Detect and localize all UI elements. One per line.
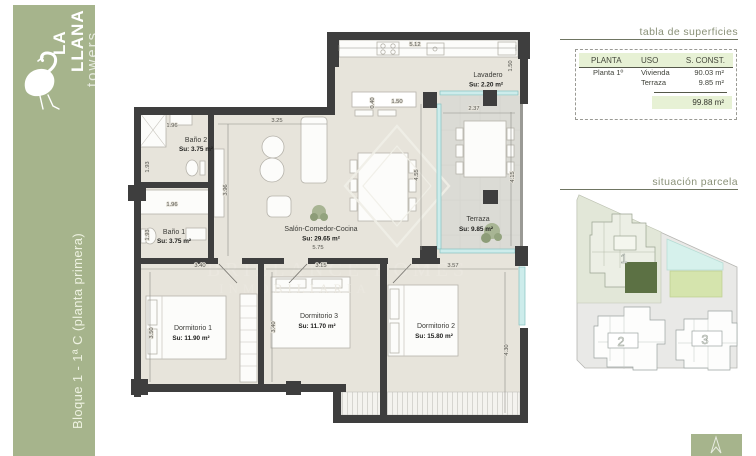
- dim-dorm2-w: 3.57: [447, 263, 458, 269]
- brand-line1: LA: [50, 30, 69, 55]
- dim-terraza-left: 4.55: [414, 169, 420, 180]
- dim-lavadero-h: 1.50: [508, 60, 514, 71]
- dim-dorm2-h: 4.30: [504, 344, 510, 355]
- dim-terraza-right: 4.15: [510, 171, 516, 182]
- surfaces-table-header: PLANTA USO S. CONST.: [579, 53, 733, 68]
- cell-planta: [579, 78, 641, 88]
- dim-salon-bottom: 5.75: [312, 245, 323, 251]
- total-separator: [654, 92, 727, 93]
- room-salon-area: Su: 29.65 m²: [302, 236, 340, 243]
- dim-salon-left: 3.25: [271, 118, 282, 124]
- garden: [670, 271, 722, 297]
- pool: [667, 239, 723, 270]
- room-salon-name: Salón-Comedor-Cocina: [284, 226, 357, 233]
- brand-sidebar: LA LLANA towers Bloque 1 - 1ª C (planta …: [13, 5, 95, 456]
- floor-plan: BRILLANCE HOMES INMOBILIARIA: [118, 20, 568, 440]
- room-dorm3-area: Su: 11.70 m²: [298, 323, 335, 330]
- north-compass: [691, 434, 742, 456]
- room-bano1-area: Su: 3.75 m²: [157, 238, 191, 245]
- watermark-line2: INMOBILIARIA: [219, 281, 371, 296]
- brand-line3: towers: [84, 31, 95, 87]
- room-dorm2-name: Dormitorio 2: [417, 323, 455, 330]
- block-unit-label: Bloque 1 - 1ª C (planta primera): [70, 211, 85, 429]
- table-row: Terraza 9.85 m²: [579, 78, 733, 88]
- header-uso: USO: [641, 56, 683, 65]
- dim-peninsula-d: 0.40: [370, 97, 376, 108]
- cell-value: 9.85 m²: [683, 78, 733, 88]
- surfaces-rule: [560, 39, 738, 40]
- cell-uso: Terraza: [641, 78, 683, 88]
- block2-number: 2: [617, 334, 624, 349]
- highlighted-unit: [625, 262, 657, 293]
- parcel-rule: [560, 189, 738, 190]
- room-bano1-name: Baño 1: [163, 229, 185, 236]
- dim-bano1-h: 1.93: [145, 229, 151, 240]
- room-terraza-name: Terraza: [466, 216, 489, 223]
- table-row: Planta 1º Vivienda 90.03 m²: [579, 68, 733, 78]
- cell-uso: Vivienda: [641, 68, 683, 78]
- room-dorm2-area: Su: 15.80 m²: [415, 333, 453, 340]
- surfaces-panel-title: tabla de superficies: [560, 26, 738, 38]
- room-terraza-area: Su: 9.85 m²: [459, 226, 493, 233]
- dim-hall: 3.96: [223, 184, 229, 195]
- room-dorm1-name: Dormitorio 1: [174, 325, 212, 332]
- north-arrow-icon: [691, 434, 742, 456]
- dim-dorm3-h: 3.40: [271, 321, 277, 332]
- dim-dorm1-w: 3.40: [194, 263, 205, 269]
- surfaces-table: PLANTA USO S. CONST. Planta 1º Vivienda …: [575, 49, 737, 120]
- dim-dorm1-h: 3.50: [149, 327, 155, 338]
- dim-bano2-w: 1.96: [166, 123, 177, 129]
- total-surface: 99.88 m²: [652, 96, 732, 109]
- dim-terraza-top: 2.37: [468, 106, 479, 112]
- room-bano2-name: Baño 2: [185, 137, 207, 144]
- dim-peninsula-w: 1.50: [391, 99, 402, 105]
- flamingo-icon: [25, 53, 59, 109]
- cell-planta: Planta 1º: [579, 68, 641, 78]
- cell-value: 90.03 m²: [683, 68, 733, 78]
- block1-number: 1: [620, 251, 627, 266]
- dim-bano2-h: 1.93: [145, 161, 151, 172]
- room-dorm1-area: Su: 11.90 m²: [172, 335, 209, 342]
- block3-number: 3: [701, 332, 708, 347]
- parcel-map: 1 2 3: [566, 193, 746, 376]
- dim-kitchen-top: 5.12: [409, 42, 420, 48]
- room-lavadero-name: Lavadero: [473, 72, 502, 79]
- header-planta: PLANTA: [579, 56, 641, 65]
- header-sconst: S. CONST.: [683, 56, 733, 65]
- brand-logo: LA LLANA towers: [13, 7, 95, 125]
- dim-dorm3-w: 3.15: [315, 263, 326, 269]
- floorplan-page: LA LLANA towers Bloque 1 - 1ª C (planta …: [0, 0, 756, 456]
- parcel-panel-title: situación parcela: [560, 176, 738, 188]
- room-dorm3-name: Dormitorio 3: [300, 313, 338, 320]
- dim-bano1-w: 1.96: [166, 202, 177, 208]
- room-bano2-area: Su: 3.75 m²: [179, 146, 213, 153]
- room-lavadero-area: Su: 2.20 m²: [469, 82, 503, 89]
